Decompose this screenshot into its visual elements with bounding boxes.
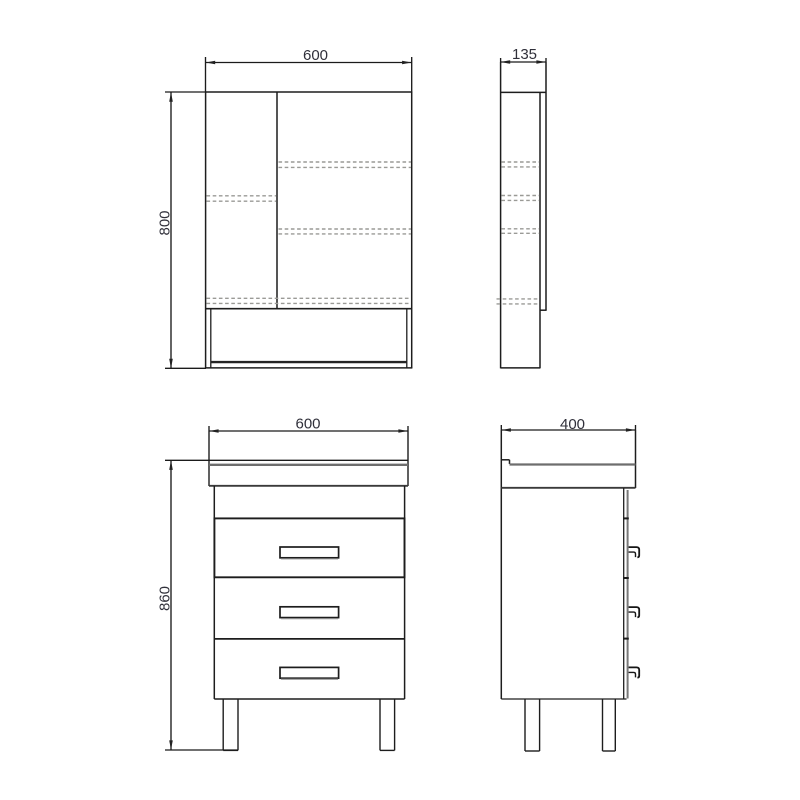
svg-text:600: 600 xyxy=(295,416,320,433)
svg-text:600: 600 xyxy=(303,47,328,64)
svg-text:800: 800 xyxy=(157,210,174,235)
svg-text:400: 400 xyxy=(560,416,585,433)
svg-text:860: 860 xyxy=(157,586,174,611)
svg-text:135: 135 xyxy=(512,46,537,63)
